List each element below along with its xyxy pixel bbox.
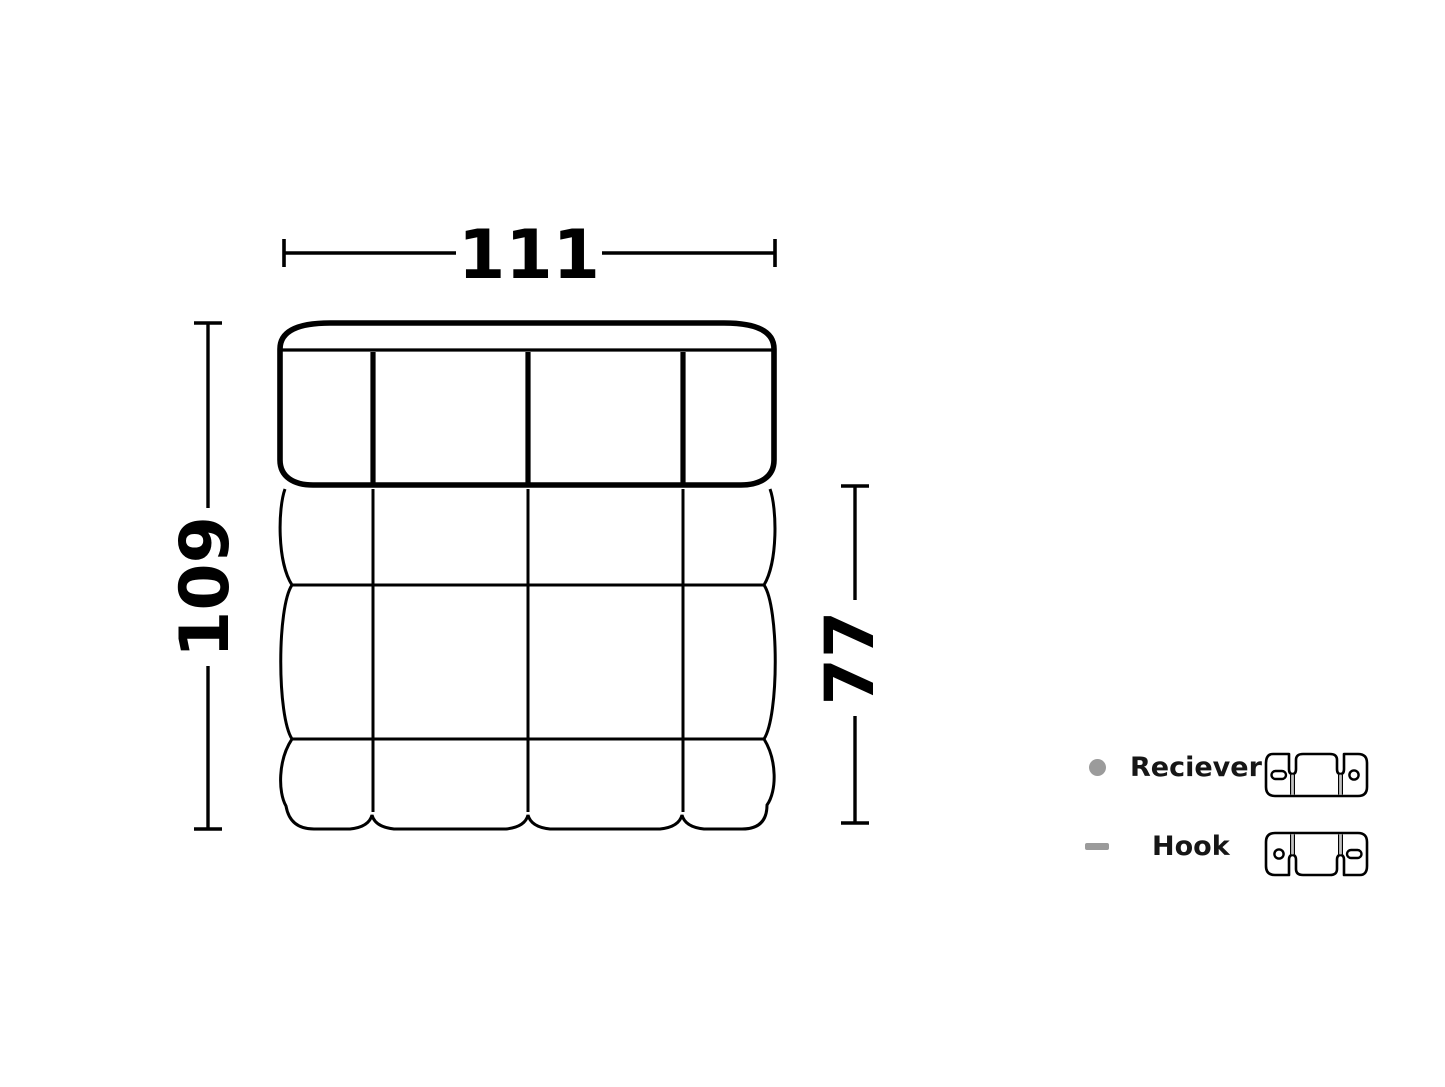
dimension-depth: 77 [811,486,890,823]
dimension-height-value: 109 [166,516,245,658]
furniture-top-view [280,323,775,829]
diagram-canvas: 111 109 77 Reciever Hook [0,0,1445,1087]
dimension-height: 109 [166,323,245,829]
quilt-gridlines [293,489,763,812]
furniture-diagram-svg: 111 109 77 [0,0,1445,1087]
dimension-depth-value: 77 [811,611,890,706]
dimension-width-value: 111 [458,216,600,295]
dimension-width: 111 [284,216,775,295]
